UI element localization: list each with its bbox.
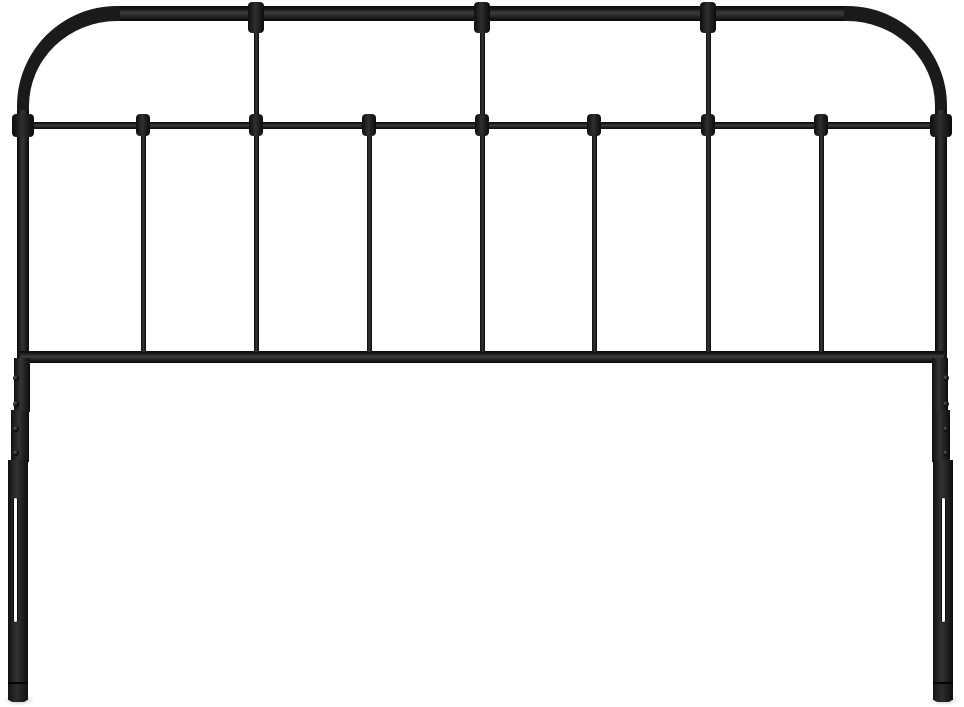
mounting-slot xyxy=(13,497,18,623)
adjustment-hole xyxy=(13,426,19,432)
right-leg-upper xyxy=(935,110,947,362)
mid-rail-collar xyxy=(701,114,715,136)
mid-rail-collar xyxy=(814,114,828,136)
adjustment-hole xyxy=(943,401,949,407)
adjustment-hole xyxy=(13,450,19,456)
adjustment-hole xyxy=(13,401,19,407)
adjustment-hole xyxy=(943,426,949,432)
product-photo-canvas xyxy=(0,0,964,707)
left-leg-upper xyxy=(17,110,29,362)
adjustment-hole xyxy=(943,450,949,456)
lower-spindle xyxy=(254,127,259,352)
lower-spindle xyxy=(480,127,485,352)
mid-rail-collar xyxy=(587,114,601,136)
mid-rail-collar xyxy=(362,114,376,136)
top-spindle xyxy=(480,19,485,123)
mid-rail-collar xyxy=(475,114,489,136)
leg-collar xyxy=(12,114,34,137)
mid-rail-collar xyxy=(249,114,263,136)
lower-spindle xyxy=(592,127,597,352)
top-spindle xyxy=(706,19,711,123)
top-rail-collar xyxy=(474,2,490,33)
top-spindle xyxy=(254,19,259,123)
top-rail-collar xyxy=(248,2,264,33)
top-rail-collar xyxy=(700,2,716,33)
lower-spindle xyxy=(141,127,146,352)
mounting-slot xyxy=(941,497,946,623)
lower-spindle xyxy=(819,127,824,352)
adjustment-hole xyxy=(943,375,949,381)
bottom-rail xyxy=(20,351,944,363)
leg-collar xyxy=(930,114,952,137)
leg-foot xyxy=(933,682,953,702)
left-leg-sleeve xyxy=(8,460,28,700)
leg-foot xyxy=(8,682,28,702)
mid-rail-collar xyxy=(136,114,150,136)
adjustment-hole xyxy=(13,375,19,381)
lower-spindle xyxy=(367,127,372,352)
lower-spindle xyxy=(706,127,711,352)
